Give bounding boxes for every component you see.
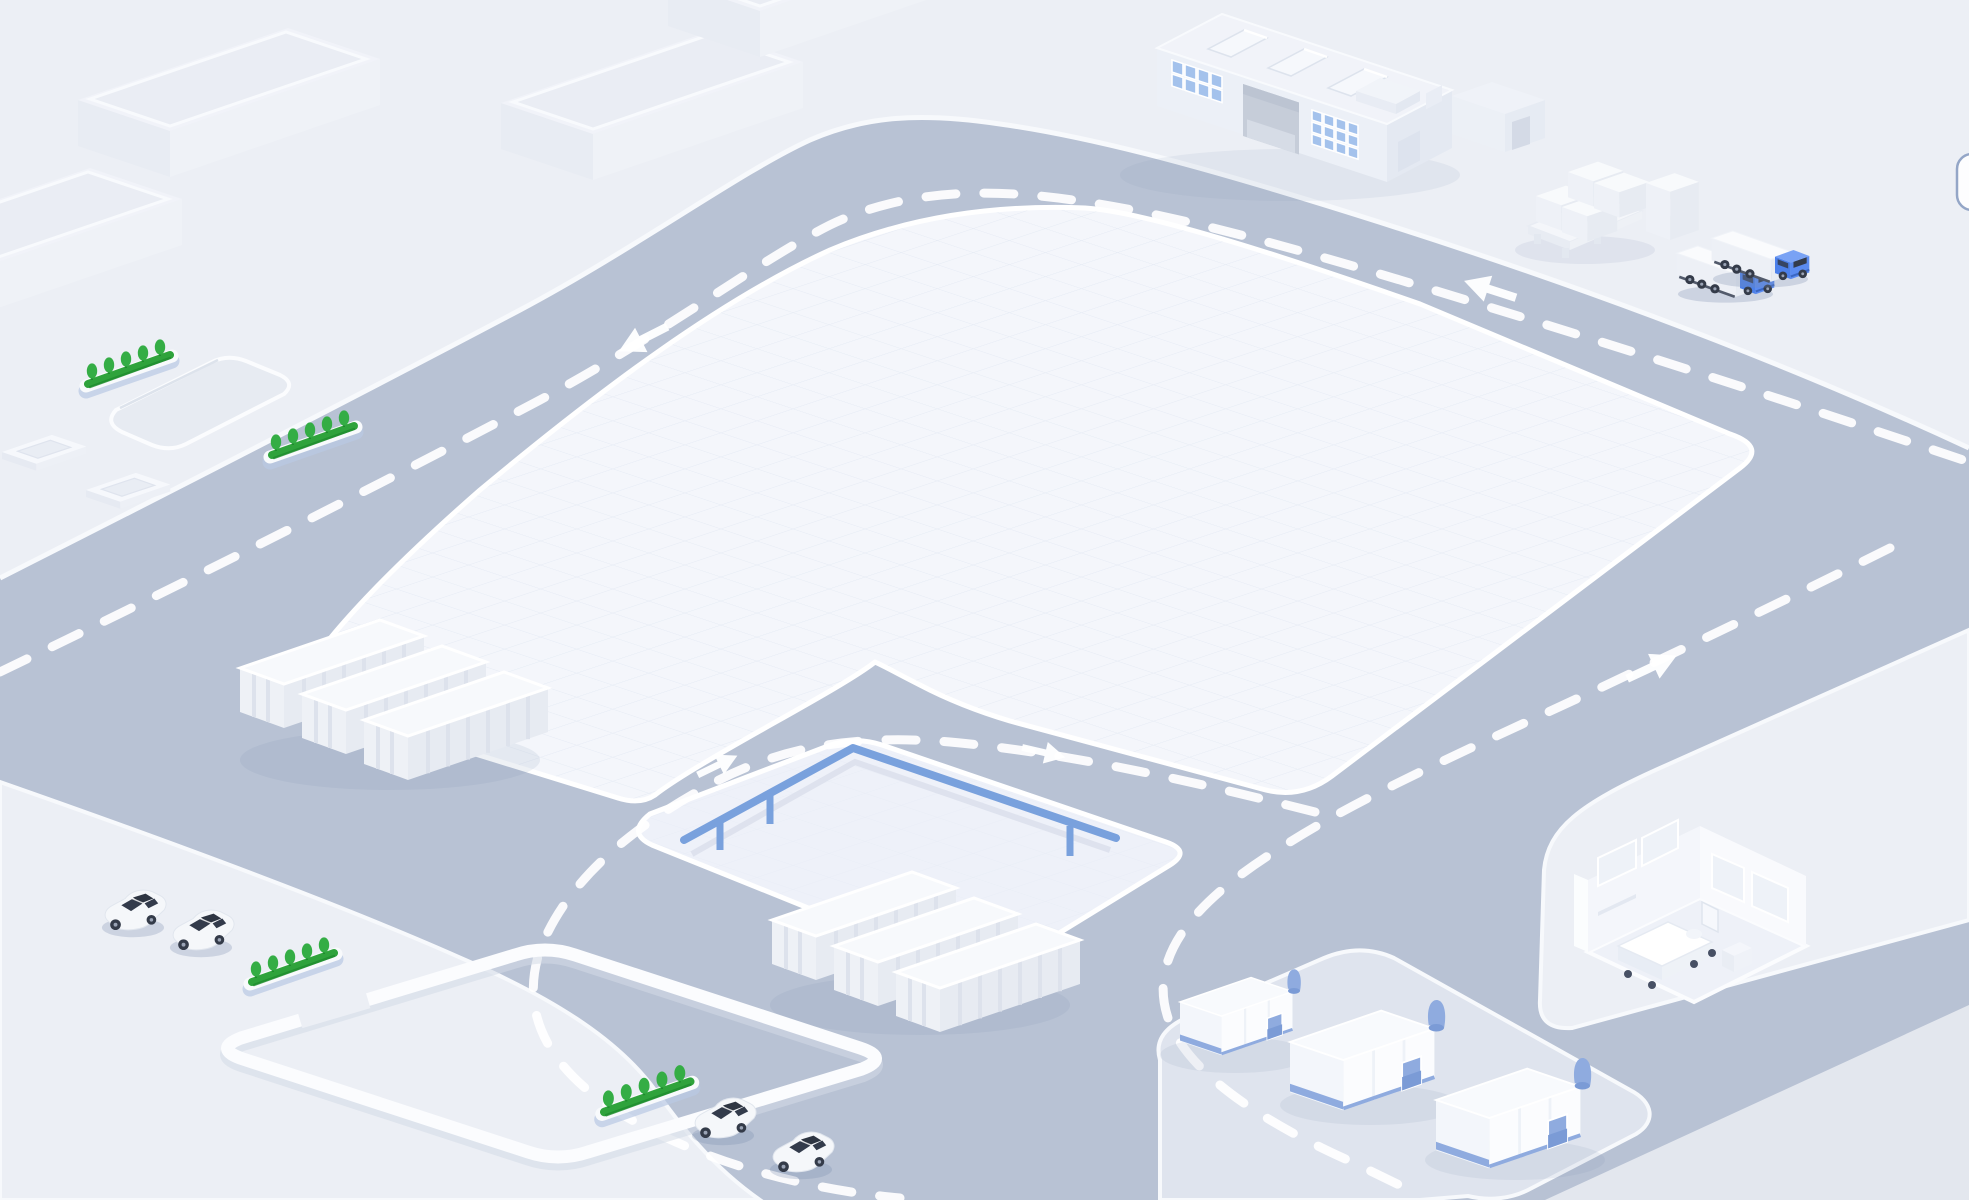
right-edge-panel[interactable]	[1957, 154, 1969, 210]
isometric-map: Isometric map with ring road, central pa…	[0, 0, 1969, 1200]
